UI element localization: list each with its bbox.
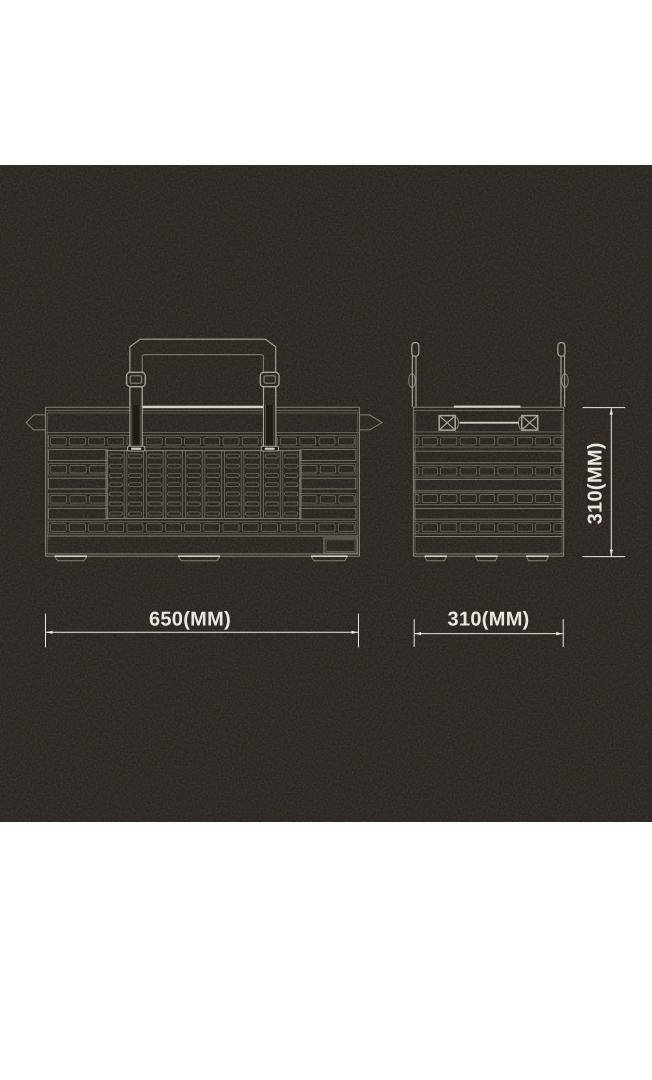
svg-text:310(MM): 310(MM) — [584, 442, 606, 524]
svg-text:310(MM): 310(MM) — [448, 608, 530, 630]
svg-text:650(MM): 650(MM) — [149, 608, 231, 630]
